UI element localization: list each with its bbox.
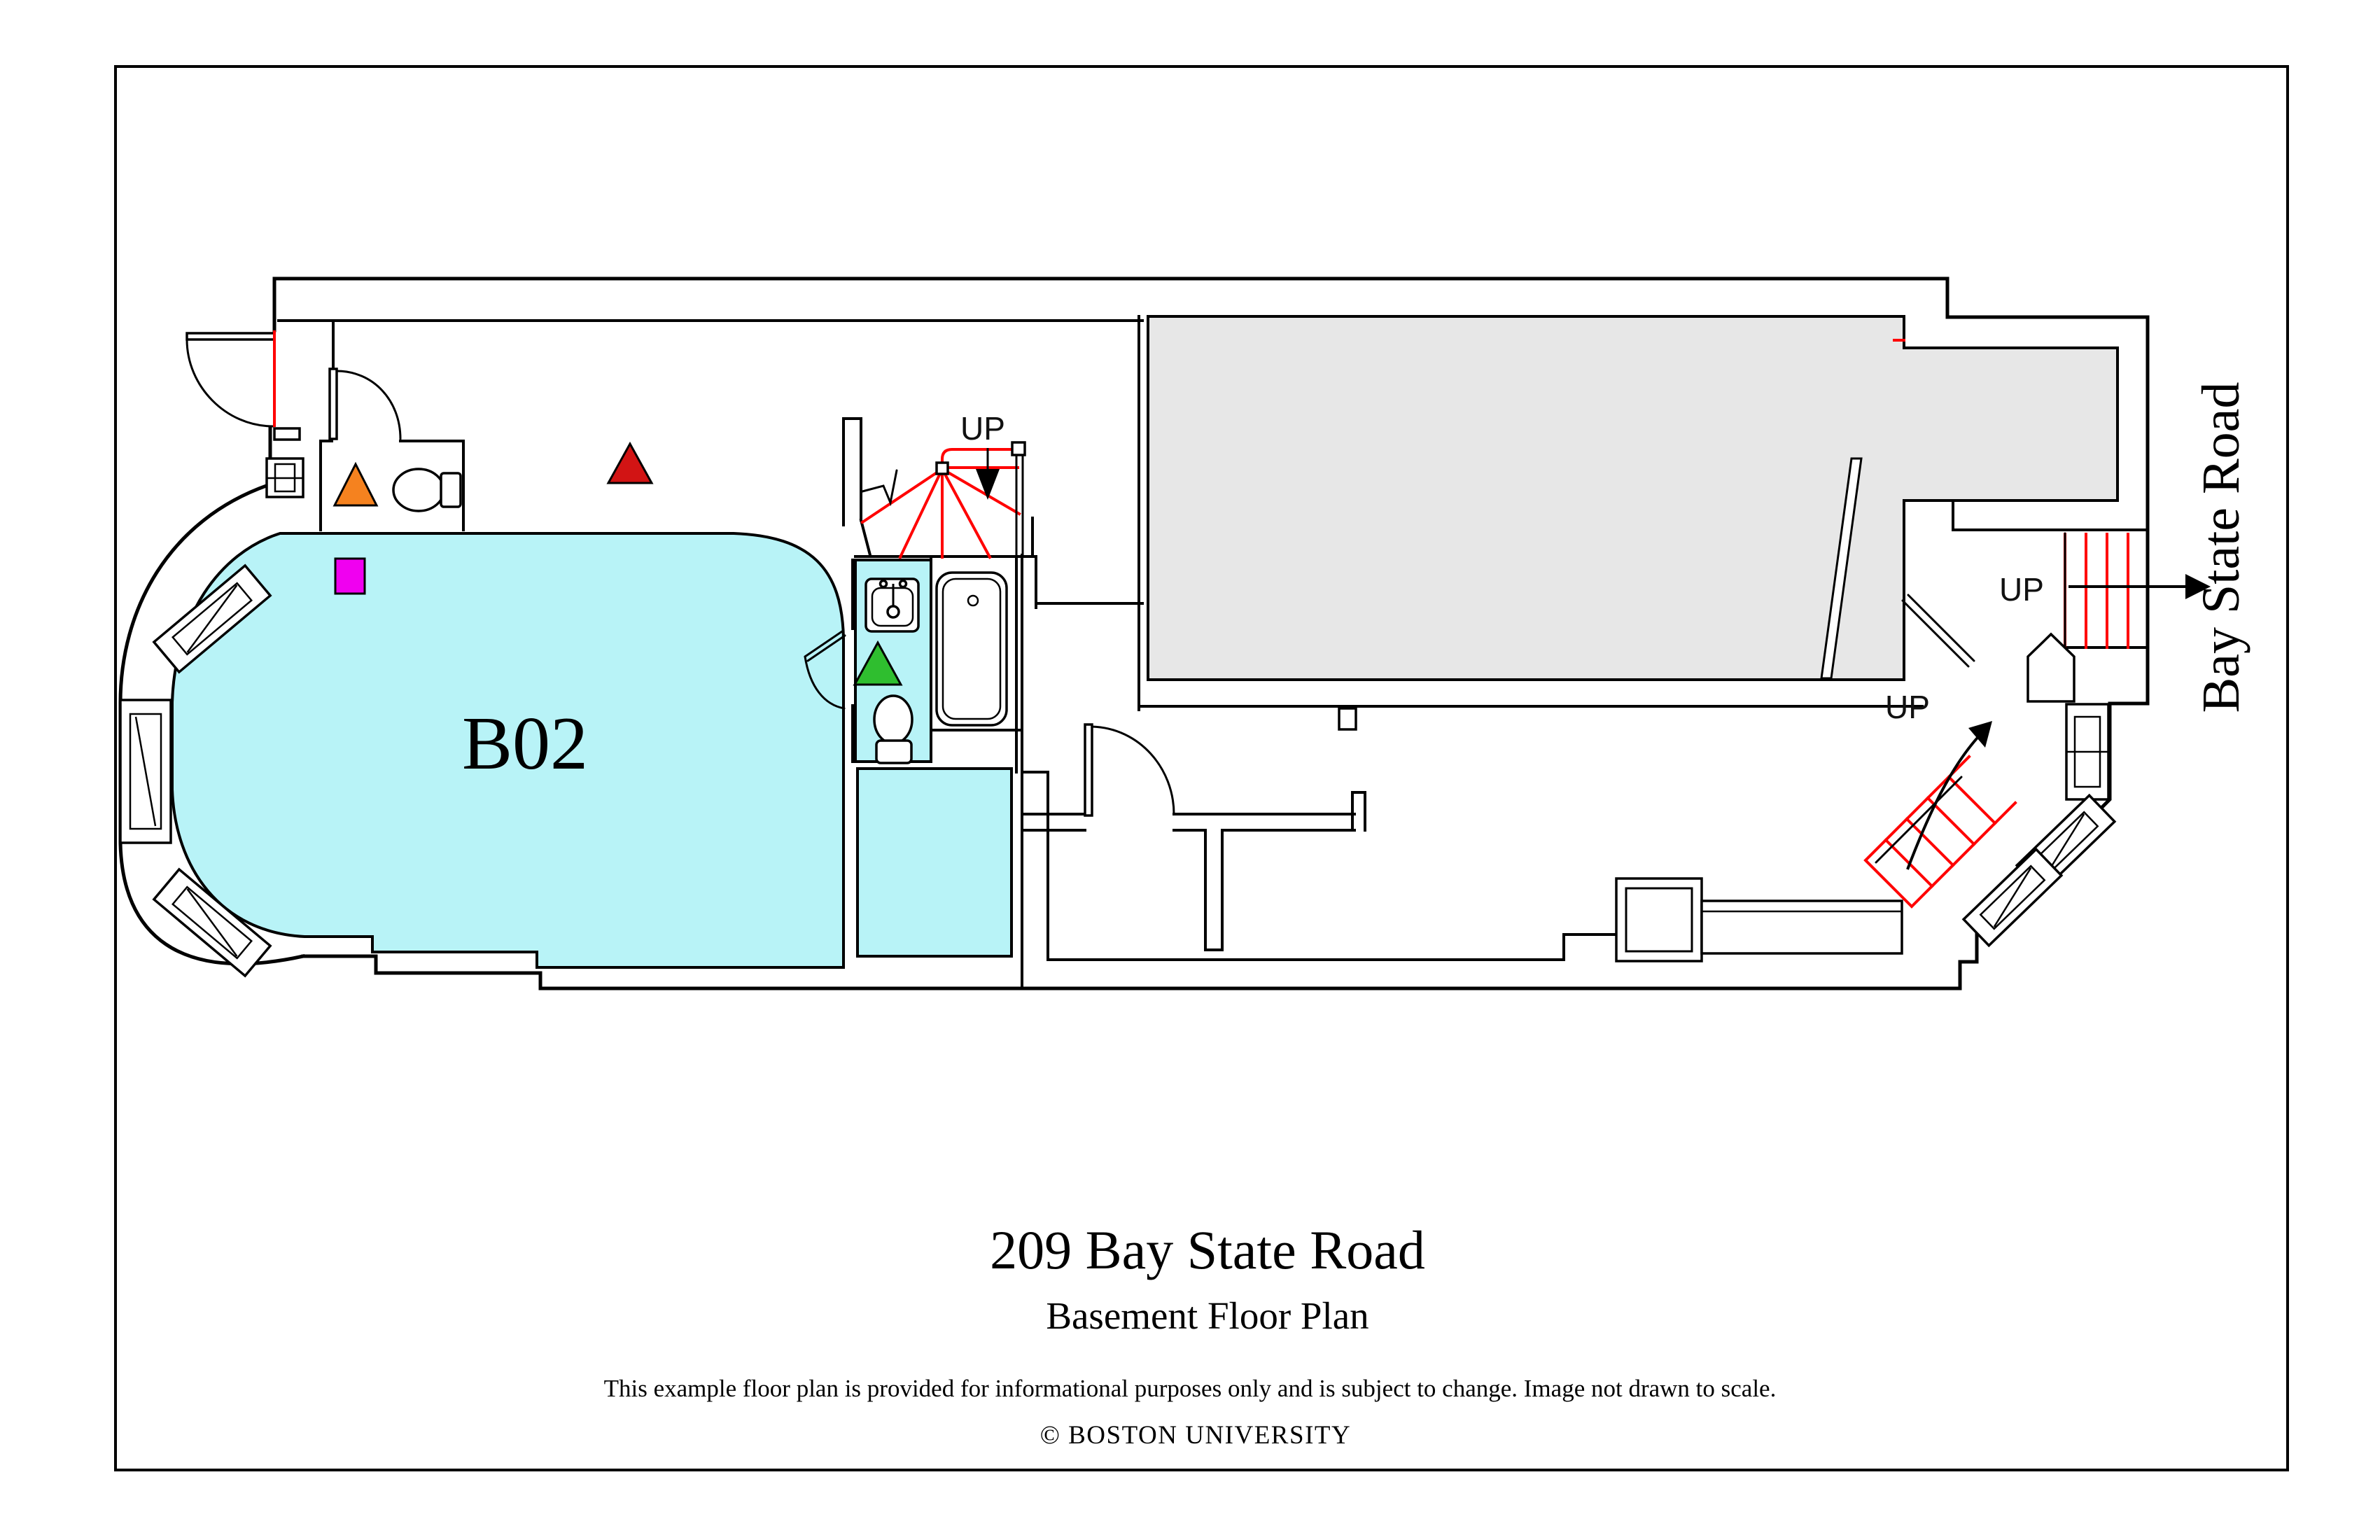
wall-tab [1339, 708, 1356, 729]
toilet-bowl [393, 469, 444, 511]
street-label: Bay State Road [2192, 382, 2250, 713]
door-leaf [187, 333, 274, 339]
closet-box [1616, 878, 1702, 961]
floor-plan-drawing: UP [0, 0, 2380, 1540]
up-label-center: UP [960, 410, 1005, 447]
title-plan-name: Basement Floor Plan [1046, 1294, 1368, 1337]
bench [1702, 901, 1902, 953]
toilet-bowl [874, 696, 912, 743]
copyright-text: © BOSTON UNIVERSITY [1040, 1421, 1351, 1450]
newel-post [937, 463, 948, 474]
toilet-tank [441, 473, 461, 507]
up-label-right: UP [1999, 571, 2044, 608]
toilet-tank [876, 741, 911, 763]
toilet-room-door-leaf [330, 369, 337, 439]
alcove-floor [857, 769, 1011, 956]
faucet-handle [900, 581, 906, 587]
window [2066, 704, 2108, 799]
marker-magenta-square [335, 559, 365, 594]
up-label-winder: UP [1885, 689, 1930, 725]
newel-post [1012, 442, 1025, 455]
room-label-b02: B02 [462, 702, 588, 785]
faucet-handle [881, 581, 887, 587]
title-address: 209 Bay State Road [990, 1219, 1425, 1280]
door-leaf [1085, 724, 1092, 815]
floor-plan-page: UP [0, 0, 2380, 1540]
bay-window [120, 700, 171, 843]
disclaimer-text: This example floor plan is provided for … [604, 1375, 1777, 1402]
